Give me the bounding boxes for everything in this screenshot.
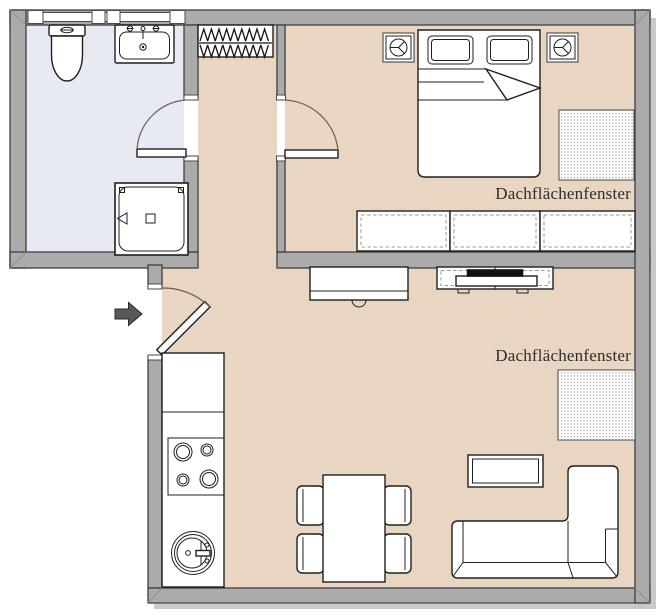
tv bbox=[456, 276, 537, 286]
chair bbox=[297, 534, 324, 573]
label-roof-window-bedroom: Dachflächenfenster bbox=[495, 184, 631, 204]
bathroom-door-leaf bbox=[137, 149, 186, 157]
double-bed bbox=[418, 30, 540, 177]
floor-plan-drawing bbox=[0, 0, 662, 616]
ceiling-spot-lamp-right bbox=[547, 33, 578, 62]
hall-wardrobe-hangers bbox=[198, 25, 273, 57]
wall-bedroom-left-upper bbox=[277, 25, 285, 98]
wall-right bbox=[635, 10, 650, 603]
bedroom-door-leaf bbox=[285, 150, 338, 158]
chair bbox=[297, 486, 324, 525]
wardrobe-unit bbox=[357, 211, 450, 251]
roof-window-living bbox=[558, 370, 635, 440]
wall-bedroom-bottom bbox=[277, 252, 650, 268]
wardrobe-unit bbox=[450, 211, 540, 251]
bathroom-window bbox=[28, 11, 185, 24]
shower bbox=[115, 183, 188, 255]
roof-window-bedroom bbox=[559, 110, 634, 180]
wall-bedroom-left-lower bbox=[277, 158, 285, 252]
chair bbox=[384, 486, 411, 525]
tv-lowboard bbox=[437, 267, 553, 293]
chair bbox=[384, 534, 411, 573]
washbasin bbox=[115, 25, 174, 63]
wall-left-lower bbox=[148, 357, 162, 588]
dining-table bbox=[323, 475, 385, 582]
entry-arrow-icon bbox=[115, 303, 142, 326]
wall-bottom bbox=[148, 588, 650, 603]
floor-plan-page: Dachflächenfenster Dachflächenfenster bbox=[0, 0, 662, 616]
label-roof-window-living: Dachflächenfenster bbox=[495, 346, 631, 366]
bedroom-wardrobe-row bbox=[357, 211, 635, 251]
tv-screen bbox=[467, 270, 523, 277]
wall-left-bathroom bbox=[10, 10, 26, 268]
coffee-table bbox=[468, 455, 543, 487]
wardrobe-unit bbox=[540, 211, 635, 251]
kitchen-counter bbox=[162, 353, 224, 587]
wall-bathroom-right-upper bbox=[184, 25, 198, 98]
ceiling-spot-lamp-left bbox=[383, 33, 414, 62]
